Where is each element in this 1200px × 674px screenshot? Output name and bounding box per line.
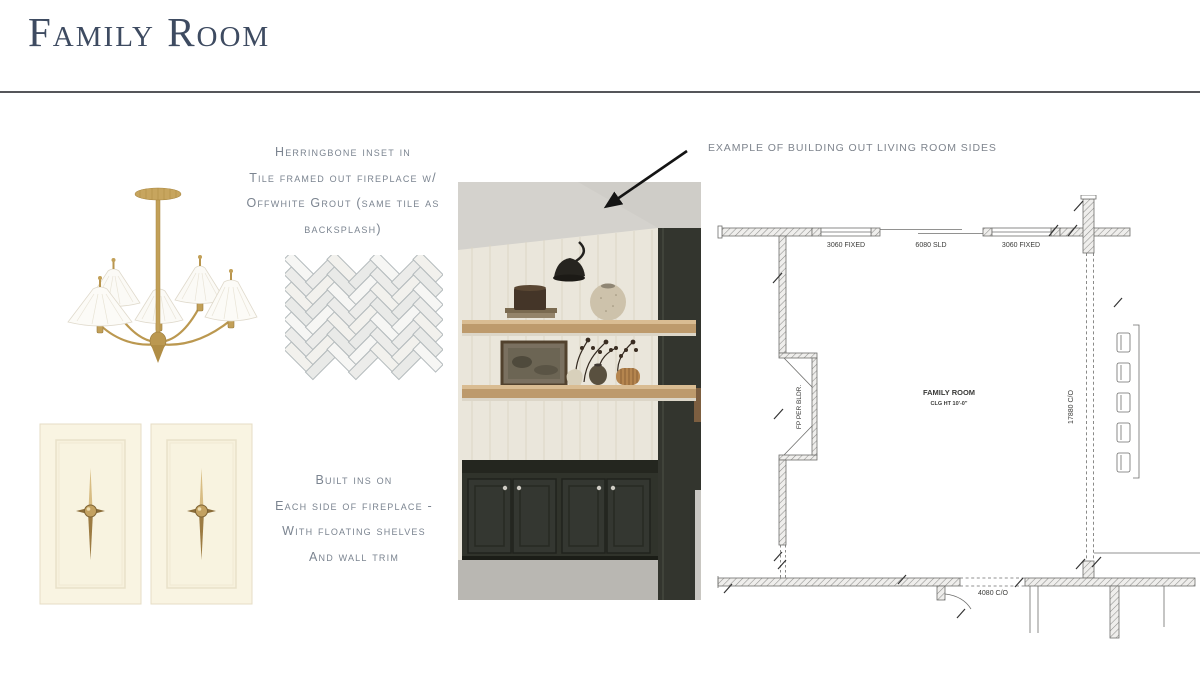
cabinet-doors-image (38, 420, 260, 612)
tile-note-line: backsplash) (242, 217, 444, 243)
builtins-photo (458, 182, 701, 600)
plan-label-window-right: 3060 FIXED (1002, 242, 1040, 249)
plan-label-side-opening: 17880 C/O (1068, 390, 1075, 424)
plan-label-fireplace: FP PER BLDR. (796, 385, 803, 430)
chandelier-drawing (68, 188, 257, 363)
plan-label-bottom-opening: 4080 C/O (978, 590, 1009, 597)
plan-label-sliding-door: 6080 SLD (915, 242, 946, 249)
floor-plan: 3060 FIXED 6080 SLD 3060 FIXED FAMILY RO… (712, 195, 1200, 665)
tile-note-line: Herringbone inset in (242, 140, 444, 166)
herringbone-tile-image (285, 255, 443, 385)
base-cabinets (462, 460, 658, 560)
stair-treads (1114, 298, 1139, 478)
door-stub (937, 586, 945, 600)
example-note: EXAMPLE OF BUILDING OUT LIVING ROOM SIDE… (708, 142, 997, 154)
builtins-note-line: Built ins on (252, 468, 456, 494)
cabinet-door (151, 424, 252, 604)
title-divider (0, 91, 1200, 93)
builtins-note-line: And wall trim (252, 545, 456, 571)
page-title: Family Room (28, 8, 270, 56)
chandelier-image (45, 172, 260, 372)
builtins-note-line: Each side of fireplace - (252, 494, 456, 520)
carpet-floor (458, 560, 658, 600)
plan-walls (718, 195, 1200, 638)
cabinet-door (40, 424, 141, 604)
plan-label-window-left: 3060 FIXED (827, 242, 865, 249)
tile-note-line: Tile framed out fireplace w/ (242, 166, 444, 192)
builtins-note: Built ins on Each side of fireplace - Wi… (252, 468, 456, 570)
tile-note-line: Offwhite Grout (same tile as (242, 191, 444, 217)
plan-room-name: FAMILY ROOM (923, 388, 975, 397)
plan-ceiling-height: CLG HT 10'-0" (931, 401, 968, 407)
door-swing (945, 594, 971, 609)
builtins-note-line: With floating shelves (252, 519, 456, 545)
tile-note: Herringbone inset in Tile framed out fir… (242, 140, 444, 242)
annotation-arrow (585, 136, 700, 221)
